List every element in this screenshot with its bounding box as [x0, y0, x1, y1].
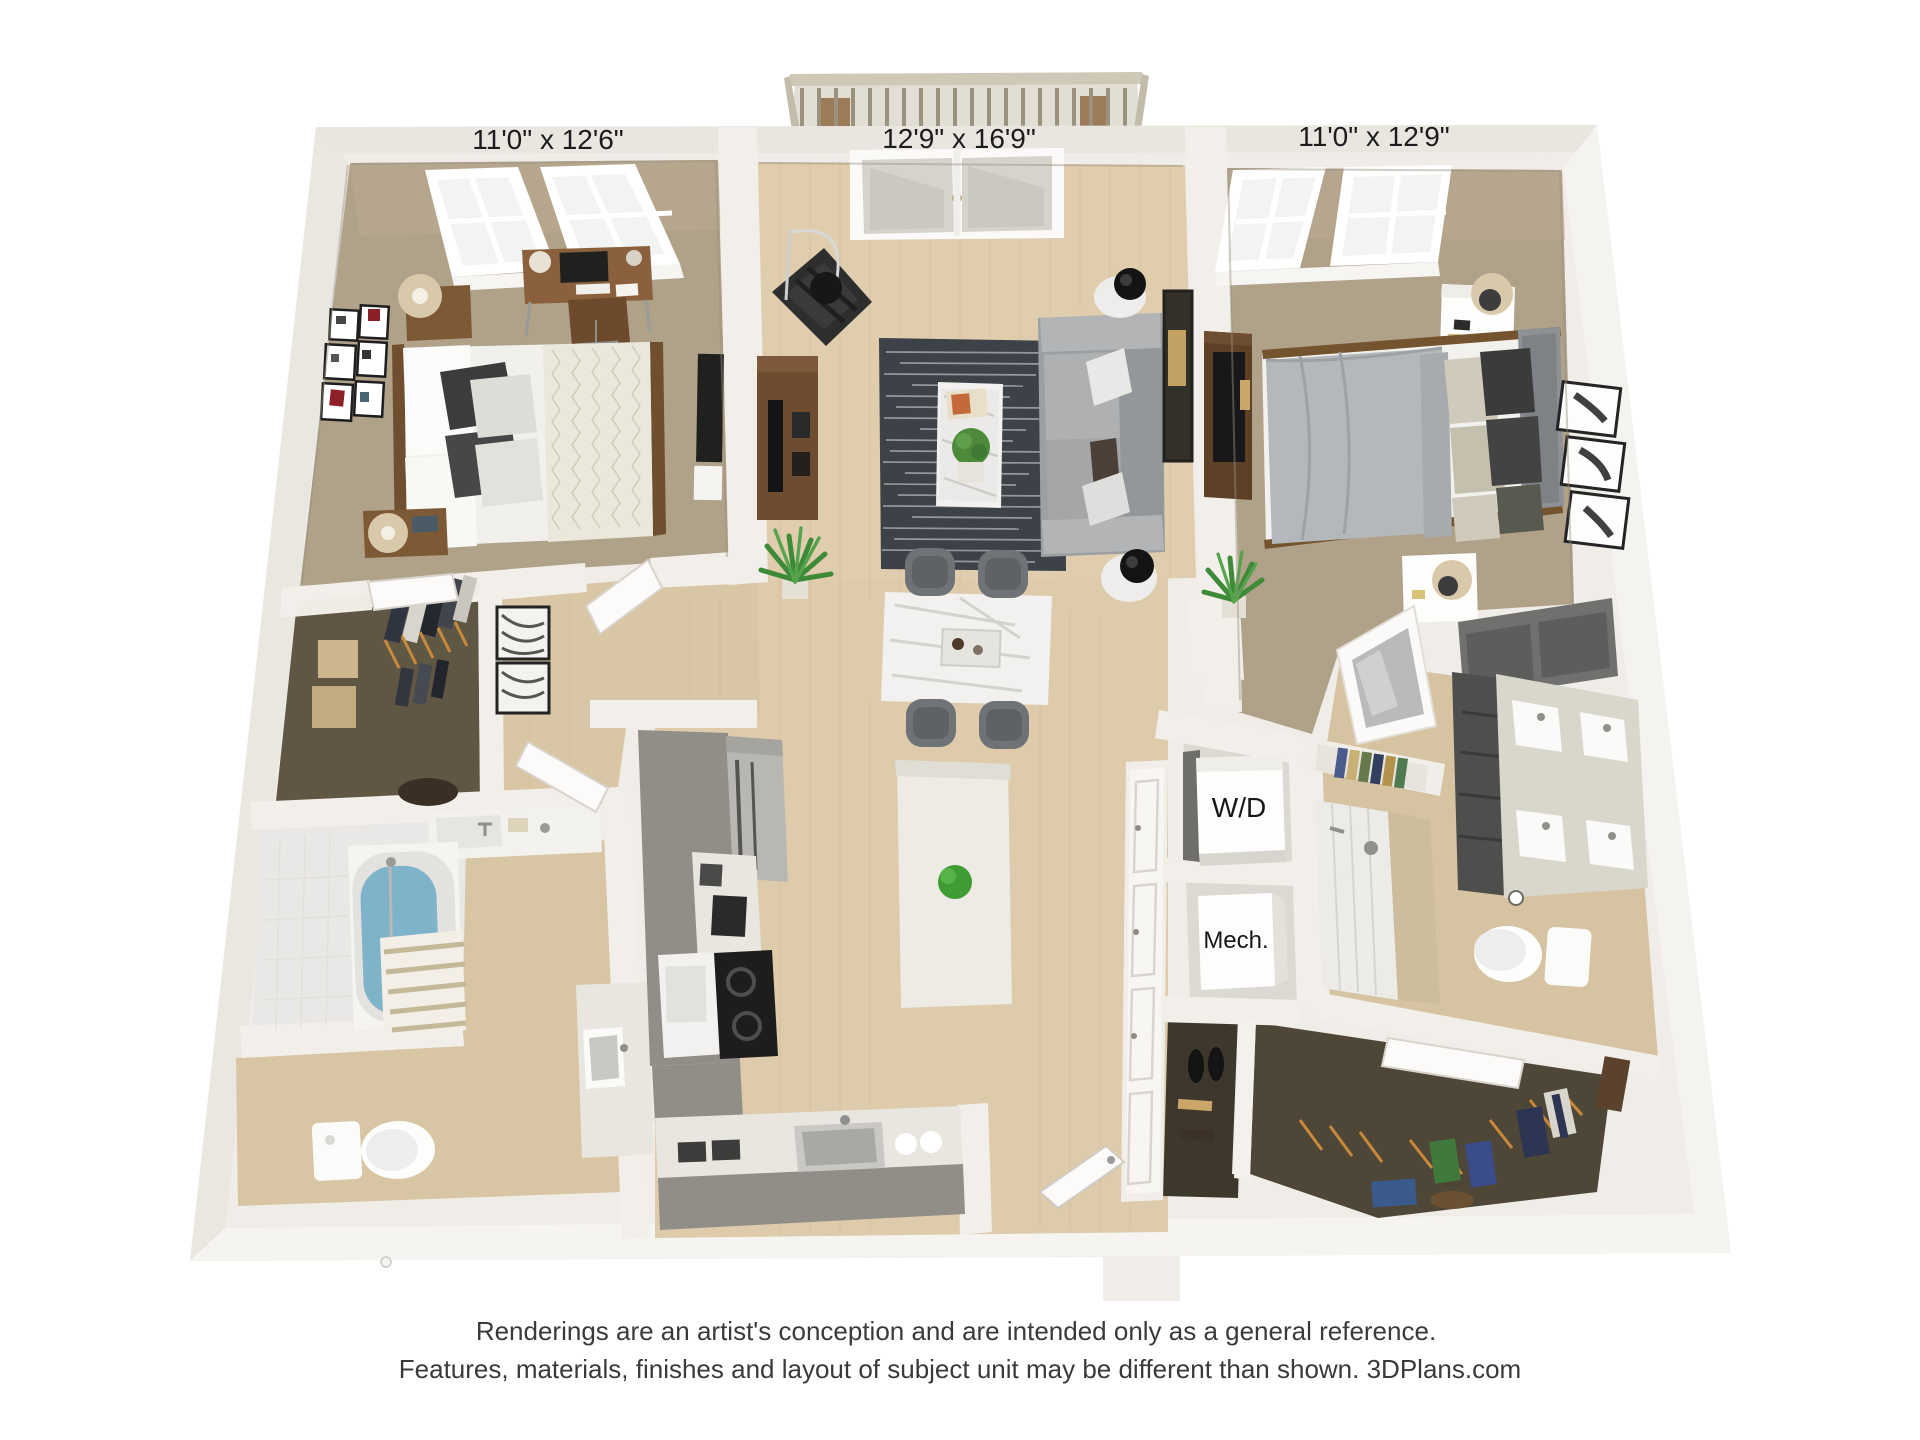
- svg-text:W/D: W/D: [1212, 792, 1266, 823]
- svg-text:Features, materials, finishes: Features, materials, finishes and layout…: [399, 1354, 1521, 1384]
- svg-text:12'9" x 16'9": 12'9" x 16'9": [882, 123, 1036, 154]
- svg-text:Mech.: Mech.: [1203, 927, 1268, 954]
- svg-text:11'0" x 12'9": 11'0" x 12'9": [1298, 121, 1449, 152]
- svg-text:Renderings are an artist's con: Renderings are an artist's conception an…: [476, 1316, 1436, 1346]
- svg-text:11'0" x 12'6": 11'0" x 12'6": [472, 124, 623, 155]
